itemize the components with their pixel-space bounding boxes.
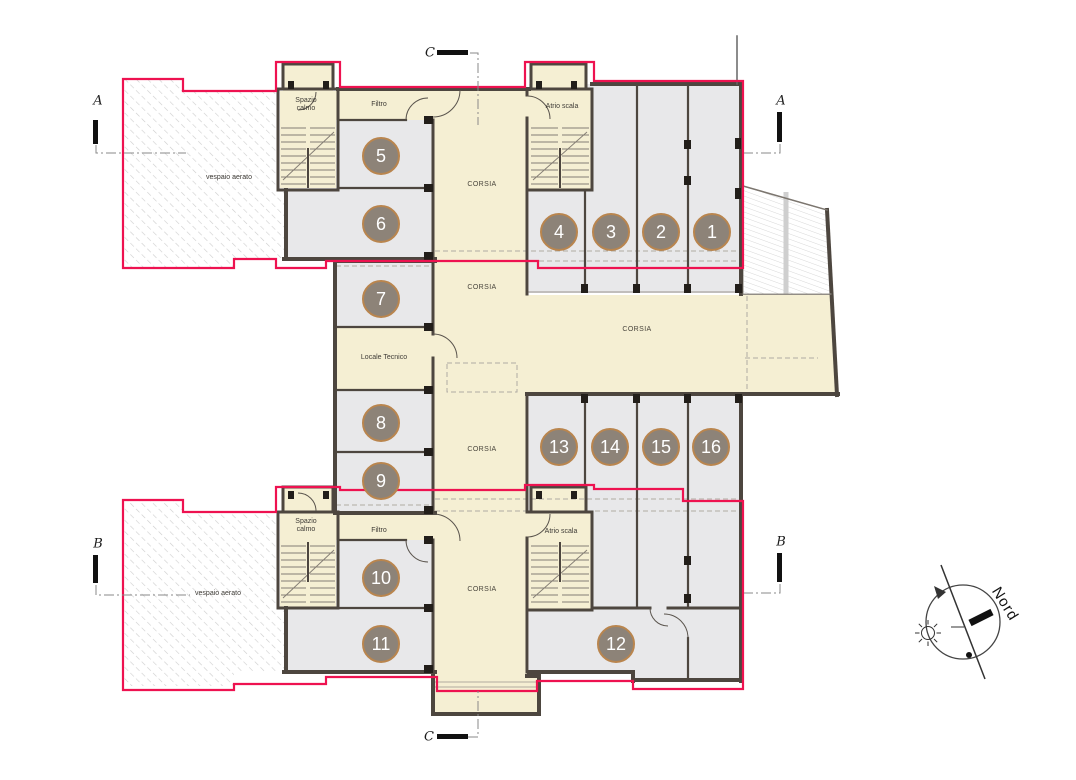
section-letter-c-top: C — [425, 46, 435, 61]
label-vespaio-bottom: vespaio aerato — [195, 590, 241, 598]
room-tag-8: 8 — [362, 404, 400, 442]
label-corsia-2: CORSIA — [467, 284, 496, 292]
section-letter-c-bottom: C — [424, 730, 434, 745]
label-filtro-bottom: Filtro — [371, 527, 387, 535]
room-tag-3: 3 — [592, 213, 630, 251]
room-tag-9: 9 — [362, 462, 400, 500]
floor-plan-drawing — [0, 0, 1076, 780]
room-tag-7: 7 — [362, 280, 400, 318]
label-corsia-4: CORSIA — [467, 446, 496, 454]
vespaio-top-area — [123, 79, 286, 268]
room-tag-16: 16 — [692, 428, 730, 466]
label-spazio-calmo-top: Spazio calmo — [290, 97, 322, 113]
section-letter-a-right: A — [776, 94, 785, 109]
section-bar-a-left — [93, 120, 98, 144]
section-letter-b-right: B — [776, 535, 786, 550]
north-compass — [915, 565, 1000, 679]
room-tag-1: 1 — [693, 213, 731, 251]
section-bar-c-top — [437, 50, 468, 55]
label-corsia-3: CORSIA — [622, 326, 651, 334]
room-tag-6: 6 — [362, 205, 400, 243]
section-bar-b-left — [93, 555, 98, 583]
room-tag-5: 5 — [362, 137, 400, 175]
room-tag-11: 11 — [362, 625, 400, 663]
label-spazio-calmo-bottom: Spazio calmo — [290, 518, 322, 534]
floor-plan-canvas: Spazio calmo Filtro Atrio scala CORSIA C… — [0, 0, 1076, 780]
label-atrio-scala-top: Atrio scala — [546, 103, 579, 111]
label-filtro-top: Filtro — [371, 101, 387, 109]
north-bar — [970, 612, 992, 623]
section-letter-b-left: B — [93, 537, 103, 552]
room-tag-10: 10 — [362, 559, 400, 597]
room-tag-4: 4 — [540, 213, 578, 251]
room-tag-12: 12 — [597, 625, 635, 663]
section-bar-a-right — [777, 112, 782, 142]
label-corsia-5: CORSIA — [467, 586, 496, 594]
section-bar-b-right — [777, 553, 782, 582]
label-locale-tecnico: Locale Tecnico — [361, 354, 407, 362]
label-vespaio-top: vespaio aerato — [206, 174, 252, 182]
compass-dot — [966, 652, 972, 658]
room-tag-14: 14 — [591, 428, 629, 466]
label-atrio-scala-bottom: Atrio scala — [545, 528, 578, 536]
label-corsia-1: CORSIA — [467, 181, 496, 189]
room-tag-13: 13 — [540, 428, 578, 466]
room-tag-2: 2 — [642, 213, 680, 251]
section-letter-a-left: A — [93, 94, 102, 109]
room-tag-15: 15 — [642, 428, 680, 466]
section-bar-c-bottom — [437, 734, 468, 739]
